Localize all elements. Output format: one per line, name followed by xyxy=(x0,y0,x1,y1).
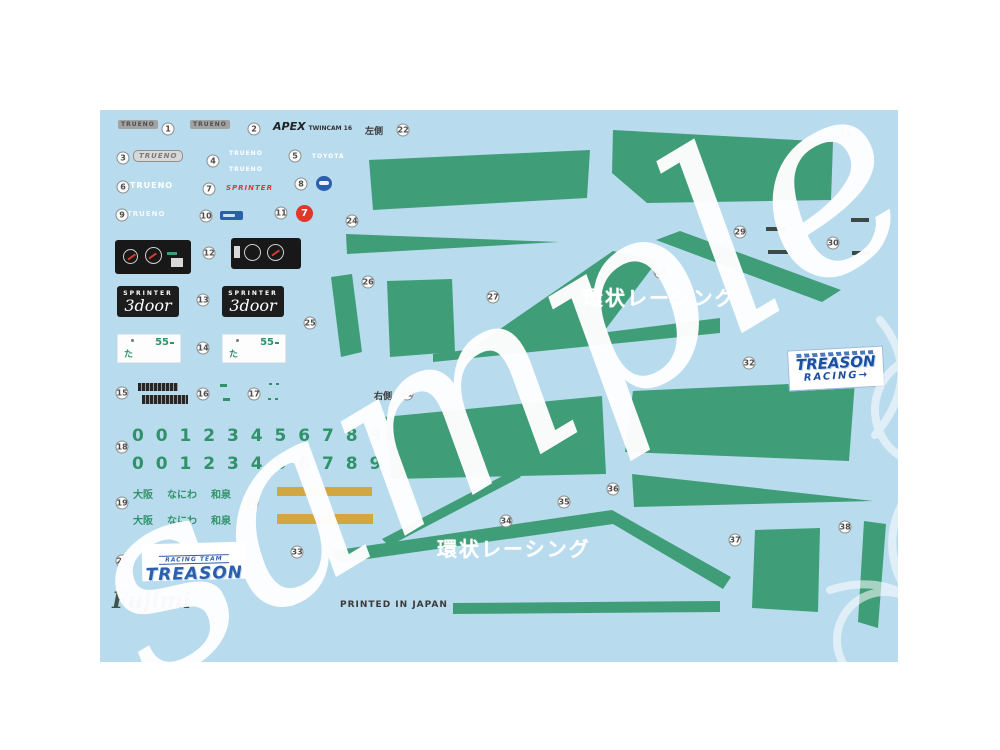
left-side-label: 左側 xyxy=(365,124,383,137)
callout-23: 23 xyxy=(839,129,852,142)
right-side-label: 右側 xyxy=(374,389,392,402)
sprinter-3door-badge: SPRINTER 3door xyxy=(222,286,284,317)
small-sticker-decal xyxy=(138,383,178,391)
region-name: 大阪 xyxy=(133,490,153,501)
kanjo-racing-text: 環状レーシング xyxy=(437,533,591,562)
plate-dot xyxy=(236,339,239,342)
callout-20: 20 xyxy=(246,497,259,510)
region-name: 和泉 xyxy=(211,516,231,527)
instrument-cluster-decal xyxy=(231,238,301,269)
apex-logo: APEXTWINCAM 16 xyxy=(273,120,352,133)
gauge-box xyxy=(234,246,240,258)
plate-dash xyxy=(275,342,279,344)
licence-plate-decal: 55 た xyxy=(222,334,286,363)
callout-6: 6 xyxy=(117,181,130,194)
plate-region-names: 大阪なにわ和泉 xyxy=(133,512,245,527)
gauge-bar xyxy=(167,252,177,255)
callout-26: 26 xyxy=(362,276,375,289)
licence-plate-decal: 55 た xyxy=(117,334,181,363)
callout-8: 8 xyxy=(295,178,308,191)
plate-dot xyxy=(131,339,134,342)
racing-number-digits: 0 0 1 2 3 4 5 6 7 8 9 xyxy=(132,426,384,446)
callout-19: 19 xyxy=(116,497,129,510)
callout-35: 35 xyxy=(558,496,571,509)
mini-green-dot xyxy=(268,398,271,400)
trueno-white-text: TRUENO xyxy=(229,166,263,173)
callout-28: 28 xyxy=(654,266,667,279)
callout-36: 36 xyxy=(607,483,620,496)
kanjo-racing-text: 環状レーシング xyxy=(583,282,737,311)
callout-18: 18 xyxy=(116,441,129,454)
red-seven-roundel: 7 xyxy=(296,205,313,222)
callout-9: 9 xyxy=(116,209,129,222)
trueno-white-text: TRUENO xyxy=(229,150,263,157)
region-name: 大阪 xyxy=(133,516,153,527)
racing-team-treason-logo: RACING TEAM TREASON xyxy=(142,542,247,582)
callout-15: 15 xyxy=(116,387,129,400)
gauge-dial xyxy=(244,244,261,261)
callout-2: 2 xyxy=(248,123,261,136)
product-photo: TRUENO TRUENO APEXTWINCAM 16 左側 TRUENO T… xyxy=(0,0,1000,750)
plate-kana: た xyxy=(229,347,238,360)
callout-21: 21 xyxy=(116,555,129,568)
treason-text: TREASON xyxy=(142,563,246,586)
apex-sub-text: TWINCAM 16 xyxy=(309,125,352,132)
toyota-white-text: TOYOTA xyxy=(312,153,344,160)
decal-sheet: TRUENO TRUENO APEXTWINCAM 16 左側 TRUENO T… xyxy=(100,110,898,662)
callout-7: 7 xyxy=(203,183,216,196)
plate-number: 55 xyxy=(260,337,274,348)
badge-bottom-text: 3door xyxy=(117,296,179,315)
treason-racing-logo: TREASON RACING→ xyxy=(787,346,885,392)
mini-green-dot xyxy=(269,383,272,385)
mini-green-dash xyxy=(220,384,227,387)
callout-10: 10 xyxy=(200,210,213,223)
callout-17: 17 xyxy=(248,388,261,401)
trueno-outline-badge: TRUENO xyxy=(133,150,183,162)
mini-green-dot xyxy=(275,398,278,400)
callout-31: 31 xyxy=(401,388,414,401)
callout-29: 29 xyxy=(734,226,747,239)
plate-dash xyxy=(170,342,174,344)
plate-region-names: 大阪なにわ和泉 xyxy=(133,486,245,501)
blue-emblem xyxy=(316,176,332,191)
small-sticker-decal xyxy=(142,395,188,404)
callout-3: 3 xyxy=(117,152,130,165)
trueno-white-text: TRUENO xyxy=(130,181,173,190)
blue-badge xyxy=(220,211,243,220)
trueno-chrome-badge: TRUENO xyxy=(118,120,158,129)
dash-decal xyxy=(851,218,869,222)
callout-1: 1 xyxy=(162,123,175,136)
callout-11: 11 xyxy=(275,207,288,220)
callout-5: 5 xyxy=(289,150,302,163)
region-name: 和泉 xyxy=(211,490,231,501)
callout-37: 37 xyxy=(729,534,742,547)
sprinter-red-text: SPRINTER xyxy=(226,184,273,192)
mini-green-dot xyxy=(276,383,279,385)
callout-25: 25 xyxy=(304,317,317,330)
printed-in-japan-text: PRINTED IN JAPAN xyxy=(340,600,448,610)
dash-decal xyxy=(766,227,786,231)
sprinter-3door-badge: SPRINTER 3door xyxy=(117,286,179,317)
region-name: なにわ xyxy=(167,516,197,527)
callout-14: 14 xyxy=(197,342,210,355)
callout-27: 27 xyxy=(487,291,500,304)
region-name: なにわ xyxy=(167,490,197,501)
gold-stripe-decal xyxy=(277,487,372,496)
callout-34: 34 xyxy=(500,515,513,528)
callout-4: 4 xyxy=(207,155,220,168)
trueno-chrome-badge: TRUENO xyxy=(190,120,230,129)
badge-bottom-text: 3door xyxy=(222,296,284,315)
trueno-ghost-text: TRUENO xyxy=(127,210,165,218)
racing-number-digits: 0 0 1 2 3 4 5 6 7 8 9 xyxy=(132,454,384,474)
instrument-cluster-decal xyxy=(115,240,191,274)
gauge-box xyxy=(171,258,183,267)
callout-32: 32 xyxy=(743,357,756,370)
callout-16: 16 xyxy=(197,388,210,401)
callout-30: 30 xyxy=(827,237,840,250)
gold-stripe-decal xyxy=(277,514,373,524)
mini-green-dash xyxy=(223,398,230,401)
callout-12: 12 xyxy=(203,247,216,260)
callout-22: 22 xyxy=(397,124,410,137)
callout-38: 38 xyxy=(839,521,852,534)
fujimi-logo: Fujimi xyxy=(112,588,191,614)
plate-number: 55 xyxy=(155,337,169,348)
dash-decal xyxy=(768,250,788,254)
plate-kana: た xyxy=(124,347,133,360)
callout-33: 33 xyxy=(291,546,304,559)
callout-24: 24 xyxy=(346,215,359,228)
dash-decal xyxy=(852,251,870,255)
callout-13: 13 xyxy=(197,294,210,307)
